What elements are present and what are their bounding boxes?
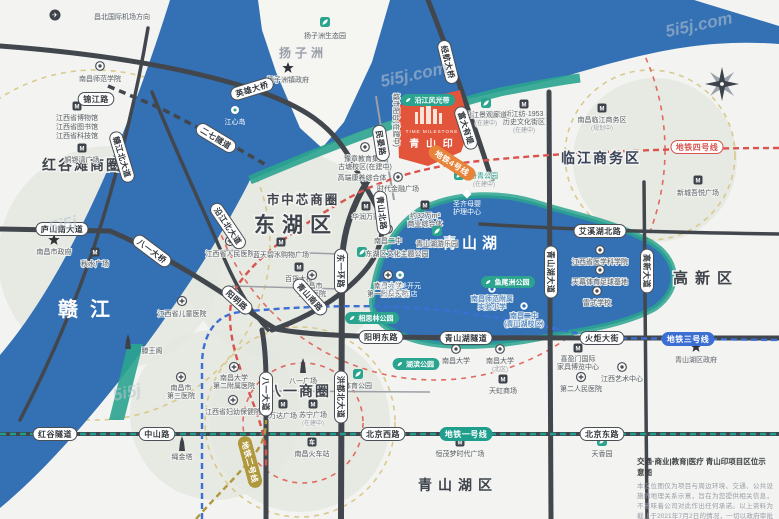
plane-icon: ✈ — [52, 13, 58, 20]
poi-label: 青山湖游乐园 — [416, 239, 458, 248]
park-icon — [432, 226, 442, 236]
poi-label: 新城吾悦广场 — [677, 188, 719, 197]
road-label-text: 红谷隧道 — [38, 429, 72, 439]
location-map-page: TIME MILESTONE青 山 印红谷滩商圈扬子洲市中芯商圈东湖区临江商务区… — [0, 0, 779, 519]
poi-label: 第二人民医院 — [560, 384, 602, 393]
school-icon — [593, 287, 602, 296]
road-label: 地铁三号线 — [662, 333, 714, 346]
train-icon: 车 — [308, 438, 317, 447]
poi-label: 体育公园 — [344, 381, 372, 390]
school-icon — [452, 345, 461, 354]
road-label-text: 青山湖大道 — [546, 251, 556, 294]
road-label-text: 地铁一号线 — [445, 429, 488, 439]
road-label: 火炬大街 — [580, 332, 624, 345]
poi-label: 天幕体育足球基地 — [572, 277, 628, 286]
poi-label: 昌北国际机场方向 — [94, 12, 150, 21]
mall-icon: M — [297, 265, 302, 271]
poi-label: 护理中心 — [453, 207, 481, 216]
mall-icon: M — [522, 102, 527, 108]
poi-label: 秋水广场 — [81, 259, 109, 268]
mall-icon: M — [520, 100, 529, 109]
road-label: 北京东路 — [580, 428, 624, 441]
school-icon — [454, 347, 457, 350]
poi-label: 南昌大学 — [220, 373, 248, 382]
poi-label: 城市阳台(在建中) — [392, 93, 401, 147]
poi-label: 新江纺·1953 — [505, 109, 544, 118]
poi-label: 名都大酒店 — [383, 289, 418, 298]
poi-label: (在建中) — [513, 126, 535, 134]
park-icon — [320, 17, 330, 27]
poi-label: (规划中) — [591, 124, 613, 132]
poi-label: 沿江景观廊道 — [465, 110, 507, 119]
park-label: 沿江风光带 — [401, 94, 455, 106]
district-label: 青山湖区 — [418, 477, 498, 493]
poi-label: 苏宁广场 — [299, 410, 327, 419]
mall-icon: M — [364, 204, 369, 210]
school-icon — [620, 365, 623, 368]
project-skyline-icon — [426, 104, 431, 124]
road-label-text: 北京东路 — [585, 429, 619, 439]
poi-label: 喜盈门国际 — [561, 354, 596, 363]
poi-label: 高端康养综合体 — [338, 173, 387, 182]
district-label: 扬子洲 — [279, 45, 327, 60]
poi-label: 南昌二中 — [510, 311, 538, 320]
poi-label: 江西省博物馆 — [56, 113, 98, 122]
mall-icon: M — [80, 146, 85, 152]
poi-label: 南昌师范附属 — [471, 294, 513, 303]
project-skyline-icon — [415, 112, 418, 124]
poi-label: 南昌临江商务区 — [578, 115, 627, 124]
road-label-text: 北京西路 — [366, 429, 400, 439]
hosp-icon — [229, 396, 238, 405]
mall-icon: M — [295, 263, 304, 272]
road-label-text: 中山路 — [144, 429, 170, 439]
park-label: 沿江风光带 — [415, 96, 450, 105]
road-label: 洪都北大道 — [335, 371, 348, 423]
road-label: 地铁一号线 — [440, 428, 492, 441]
project-skyline-icon — [433, 109, 437, 124]
road-label: 艾溪湖北路 — [574, 225, 626, 238]
road-label: 红谷隧道 — [33, 428, 77, 441]
district-label: 八一商圈 — [266, 383, 331, 399]
hosp-icon — [384, 271, 393, 280]
park-label: 湖滨公园 — [393, 358, 440, 370]
park-label: 鱼尾洲公园 — [495, 278, 530, 287]
poi-label: 雷式学校 — [583, 298, 611, 307]
poi-label: (在建中) — [475, 119, 497, 127]
park-icon — [353, 369, 363, 379]
school-icon — [498, 347, 501, 350]
road-label-text: 青山湖隧道 — [445, 333, 488, 343]
poi-label: 万达广场 — [269, 411, 297, 420]
road-label-text: 八一大道 — [261, 376, 271, 411]
poi-label: 南昌凯美开元 — [379, 281, 421, 290]
school-icon — [361, 143, 370, 152]
poi-label: 天虹商场 — [489, 386, 517, 395]
poi-label: 第三医院 — [167, 391, 195, 400]
map-canvas[interactable]: TIME MILESTONE青 山 印红谷滩商圈扬子洲市中芯商圈东湖区临江商务区… — [0, 0, 779, 519]
road-label: 阳明东路 — [359, 331, 403, 344]
dotw-icon — [231, 106, 239, 114]
mall-icon: M — [694, 176, 703, 185]
district-label: 赣江 — [58, 297, 122, 321]
school-icon — [595, 289, 598, 292]
road-label-text: 地铁四号线 — [676, 142, 719, 152]
dot-icon — [394, 173, 403, 182]
poi-label: 第二附属医院 — [213, 381, 255, 390]
mall-icon: M — [91, 248, 100, 257]
poi-label: 铜锣湾广场 — [65, 155, 100, 164]
mall-icon: M — [281, 402, 286, 408]
park-label: 湖滨公园 — [406, 360, 434, 369]
disclaimer-title: 交通·商业|教育|医疗 青山印项目区位示意图 — [637, 456, 773, 478]
poi-label: 南昌师范学院 — [79, 74, 121, 83]
district-label: 市中芯商圈 — [267, 192, 340, 207]
project-skyline-icon — [420, 107, 424, 124]
poi-label: 圣齐母婴 — [453, 199, 481, 208]
train-icon: 车 — [309, 438, 315, 446]
road-label: 青山湖隧道 — [440, 332, 492, 345]
poi-label: 江西艺术中心 — [601, 374, 643, 383]
compass-icon — [720, 82, 725, 87]
poi-label: 南昌大学 — [486, 356, 514, 365]
school-icon — [363, 145, 366, 148]
poi-label: 南昌市政府 — [37, 247, 72, 256]
hosp-icon — [230, 363, 239, 372]
mall-icon: M — [423, 203, 428, 209]
poi-label: 江西省科技馆 — [56, 131, 98, 140]
park-label: 相思林公园 — [359, 314, 394, 323]
poi-label: 江西省儿童医院 — [158, 309, 207, 318]
road-label: 地铁四号线 — [671, 141, 723, 154]
poi-label: 南昌二中 — [374, 236, 402, 245]
school-icon — [598, 248, 601, 251]
poi-label: 江西省医学科学院 — [572, 257, 628, 266]
mall-icon: M — [501, 377, 506, 383]
road-label: 锦江路 — [78, 93, 114, 106]
poi-label: 江西省人民医院 — [206, 249, 255, 258]
dotw-icon — [396, 271, 404, 279]
mall-icon: M — [309, 400, 318, 409]
road-label-text: 洪都北大道 — [336, 376, 346, 419]
hosp-icon — [178, 297, 187, 306]
road-label: 八一大道 — [260, 372, 273, 416]
hosp-icon — [177, 373, 186, 382]
road-label-text: 锦江路 — [83, 94, 109, 104]
mall-icon: M — [75, 104, 80, 110]
dot-icon — [618, 363, 627, 372]
poi-label: 江心岛 — [225, 117, 246, 126]
mall-icon: M — [279, 400, 288, 409]
project-name-en: TIME MILESTONE — [406, 129, 459, 134]
park-label: 相思林公园 — [345, 312, 399, 324]
poi-label: 南昌大学 — [442, 356, 470, 365]
mall-icon: M — [78, 144, 87, 153]
poi-label: 历史文化街区 — [503, 117, 545, 126]
district-label: 临江商务区 — [561, 150, 641, 166]
school-icon — [522, 304, 525, 307]
district-label: 高新区 — [673, 269, 739, 287]
road-label-text: 艾溪湖北路 — [579, 226, 622, 236]
poi-dot-icon — [399, 274, 402, 277]
hosp-icon — [308, 271, 317, 280]
poi-label: 滕王阁 — [142, 346, 163, 355]
mall-icon: M — [600, 106, 605, 112]
school-icon — [98, 64, 101, 67]
mall-icon: M — [421, 201, 430, 210]
road-label: 中山路 — [139, 428, 175, 441]
school-icon — [598, 268, 601, 271]
road-label: 青山湖大道 — [545, 246, 558, 298]
road-label-text: 高新大道 — [642, 254, 652, 288]
poi-label: (北区) — [492, 365, 508, 373]
poi-label: 江西省妇幼保健院 — [205, 407, 261, 416]
poi-label: 江西省图书馆 — [56, 122, 98, 131]
road-label-text: 东一环路 — [336, 254, 346, 288]
project-skyline-icon — [439, 113, 442, 124]
mall-icon: M — [279, 240, 284, 246]
road-label-text: 地铁三号线 — [667, 334, 710, 344]
road-label-text: 火炬大街 — [585, 333, 619, 343]
map-disclaimer: 交通·商业|教育|医疗 青山印项目区位示意图 本区位图仅为项目与周边环境、交通、… — [637, 456, 773, 519]
poi-label: (在建中) — [473, 180, 495, 188]
road-label: 北京西路 — [361, 428, 405, 441]
poi-label: (在建中) — [302, 419, 324, 427]
disclaimer-body: 本区位图仅为项目与周边环境、交通、公共设施的地理关系示意，旨在为您提供相关信息，… — [637, 482, 773, 519]
school-icon — [96, 62, 105, 71]
mall-icon: M — [458, 440, 463, 446]
poi-label: 约32万m² — [410, 211, 441, 220]
poi-label: 蓝天碧水购物广场 — [253, 250, 309, 259]
road-major — [549, 92, 551, 519]
mall-icon: M — [277, 238, 286, 247]
poi-label: 南昌市 — [171, 383, 192, 392]
road-label: 高新大道 — [641, 249, 654, 293]
poi-label: 扬子洲生态园 — [304, 31, 346, 40]
park-icon — [481, 98, 491, 108]
road-label-text: 阳明东路 — [364, 332, 398, 342]
mall-icon: M — [362, 202, 371, 211]
dot-icon — [596, 266, 605, 275]
poi-label: 绳金塔 — [172, 452, 193, 461]
mall-icon: M — [576, 346, 581, 352]
poi-label: 恒茂梦时代广场 — [436, 449, 485, 458]
mall-icon: M — [93, 250, 98, 256]
hosp-icon — [577, 373, 586, 382]
school-icon — [596, 246, 605, 255]
poi-label: 家具博览中心 — [557, 362, 599, 371]
poi-label: 古塘校区(在建中) — [338, 162, 392, 171]
mall-icon: M — [574, 344, 583, 353]
mall-icon: M — [696, 178, 701, 184]
poi-label: 实验小学 — [478, 302, 506, 311]
park-label: 鱼尾洲公园 — [481, 276, 535, 288]
poi-label: 东湖区文化主题公园 — [366, 249, 429, 258]
poi-label: 南昌火车站 — [295, 449, 330, 458]
poi-label: 天香园 — [592, 449, 613, 458]
schoolb-icon — [520, 302, 529, 311]
poi-label: (青山湖校区) — [504, 319, 544, 328]
mall-icon: M — [499, 375, 508, 384]
school-icon — [496, 345, 505, 354]
plane-icon: ✈ — [50, 10, 61, 21]
school-icon — [396, 175, 399, 178]
mall-icon: M — [311, 402, 316, 408]
poi-label: 八一广场 — [289, 376, 317, 385]
road-label: 东一环路 — [335, 249, 348, 293]
mall-icon: M — [598, 104, 607, 113]
poi-dot-icon — [234, 109, 237, 112]
district-label: 东湖区 — [254, 213, 338, 237]
poi-label: 青山湖区政府 — [675, 355, 717, 364]
